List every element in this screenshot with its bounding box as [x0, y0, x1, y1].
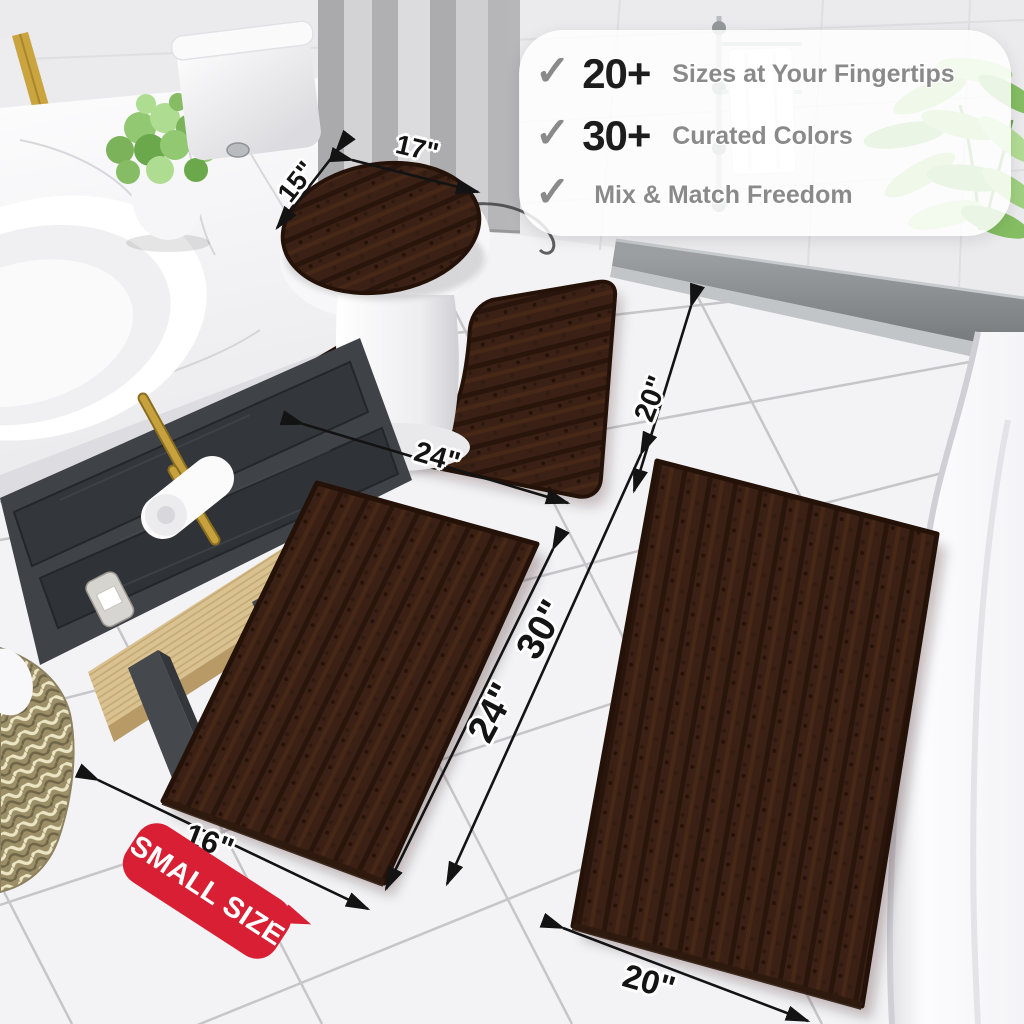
feature-label: Curated Colors: [672, 122, 853, 151]
feature-number: 20+: [582, 50, 660, 98]
feature-row-sizes: ✓ 20+ Sizes at Your Fingertips: [535, 50, 1001, 98]
check-icon: ✓: [535, 171, 570, 213]
check-icon: ✓: [535, 112, 570, 154]
feature-label: Sizes at Your Fingertips: [672, 60, 954, 89]
feature-label: Mix & Match Freedom: [594, 181, 852, 210]
feature-row-mix-match: ✓ Mix & Match Freedom: [535, 174, 1001, 216]
feature-number: 30+: [582, 112, 660, 160]
product-image: 17" 15" 24" 20" 16" 24" 30" 20" ✓ 20+ Si…: [0, 0, 1024, 1024]
feature-row-colors: ✓ 30+ Curated Colors: [535, 112, 1001, 160]
feature-panel: ✓ 20+ Sizes at Your Fingertips ✓ 30+ Cur…: [519, 30, 1011, 236]
check-icon: ✓: [535, 50, 570, 92]
